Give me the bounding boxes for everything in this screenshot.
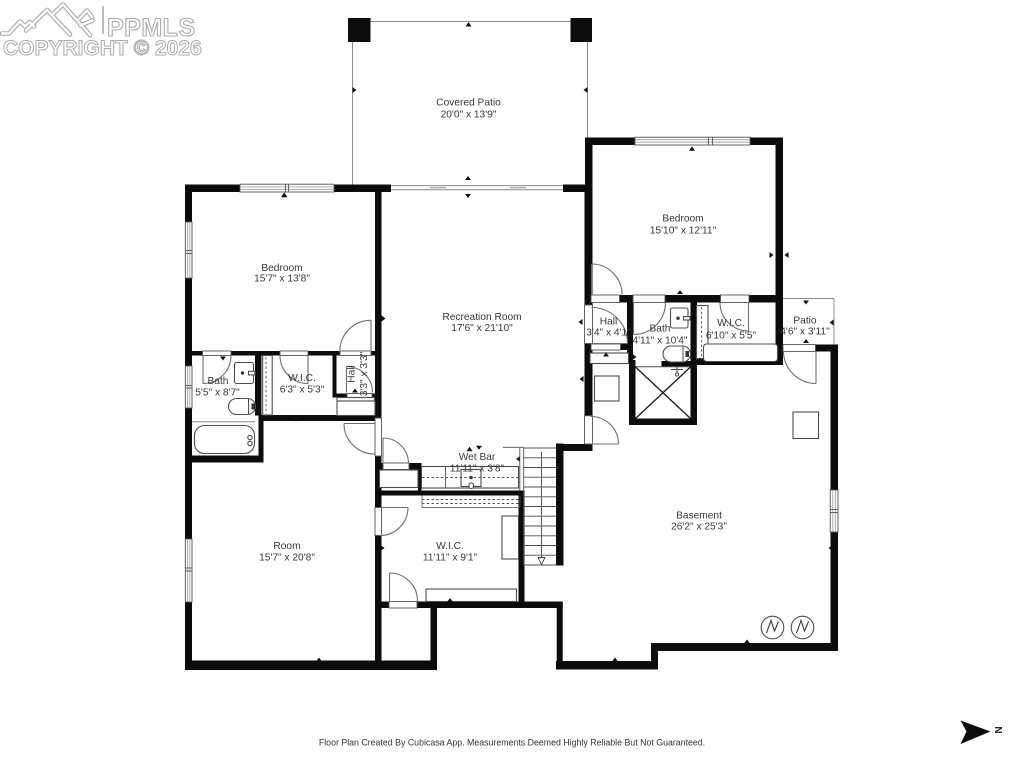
svg-text:Bedroom: Bedroom: [261, 263, 302, 274]
svg-text:W.I.C.: W.I.C.: [288, 373, 316, 384]
svg-text:Room: Room: [273, 541, 300, 552]
svg-text:5'5" x 8'7": 5'5" x 8'7": [195, 387, 240, 398]
svg-text:15'10" x 12'11": 15'10" x 12'11": [650, 225, 717, 236]
svg-text:26'2" x 25'3": 26'2" x 25'3": [671, 521, 727, 532]
svg-text:11'11" x 9'1": 11'11" x 9'1": [423, 552, 478, 563]
svg-text:20'0" x 13'9": 20'0" x 13'9": [441, 109, 497, 120]
svg-text:Recreation Room: Recreation Room: [442, 312, 521, 323]
svg-text:Bedroom: Bedroom: [662, 213, 703, 224]
svg-text:15'7" x 13'8": 15'7" x 13'8": [254, 273, 310, 284]
svg-text:COPYRIGHT © 2026: COPYRIGHT © 2026: [3, 37, 202, 60]
svg-text:4'6" x 3'11": 4'6" x 3'11": [780, 326, 830, 337]
svg-text:15'7" x 20'8": 15'7" x 20'8": [259, 552, 315, 563]
svg-text:Bath: Bath: [650, 323, 671, 334]
svg-text:6'3" x 5'3": 6'3" x 5'3": [280, 384, 325, 395]
svg-text:W.I.C.: W.I.C.: [717, 318, 745, 329]
svg-text:Covered Patio: Covered Patio: [436, 97, 501, 108]
svg-text:Wet Bar: Wet Bar: [459, 452, 496, 463]
svg-text:Basement: Basement: [676, 510, 722, 521]
svg-text:3'3" x 3'3": 3'3" x 3'3": [359, 351, 370, 396]
svg-text:Patio: Patio: [793, 315, 817, 326]
svg-text:Bath: Bath: [208, 376, 229, 387]
svg-text:Hall: Hall: [600, 316, 618, 327]
svg-text:4'11" x 10'4": 4'11" x 10'4": [632, 335, 687, 346]
svg-text:17'6" x 21'10": 17'6" x 21'10": [451, 323, 513, 334]
svg-text:Floor Plan Created By Cubicasa: Floor Plan Created By Cubicasa App. Meas…: [319, 738, 705, 748]
svg-text:N: N: [992, 726, 1003, 733]
svg-text:W.I.C.: W.I.C.: [436, 541, 464, 552]
svg-text:Hall: Hall: [347, 365, 358, 383]
svg-text:11'11" x 3'8": 11'11" x 3'8": [450, 463, 505, 474]
svg-text:6'10" x 5'5": 6'10" x 5'5": [706, 330, 757, 341]
svg-text:3'4" x 4'1": 3'4" x 4'1": [586, 327, 631, 338]
